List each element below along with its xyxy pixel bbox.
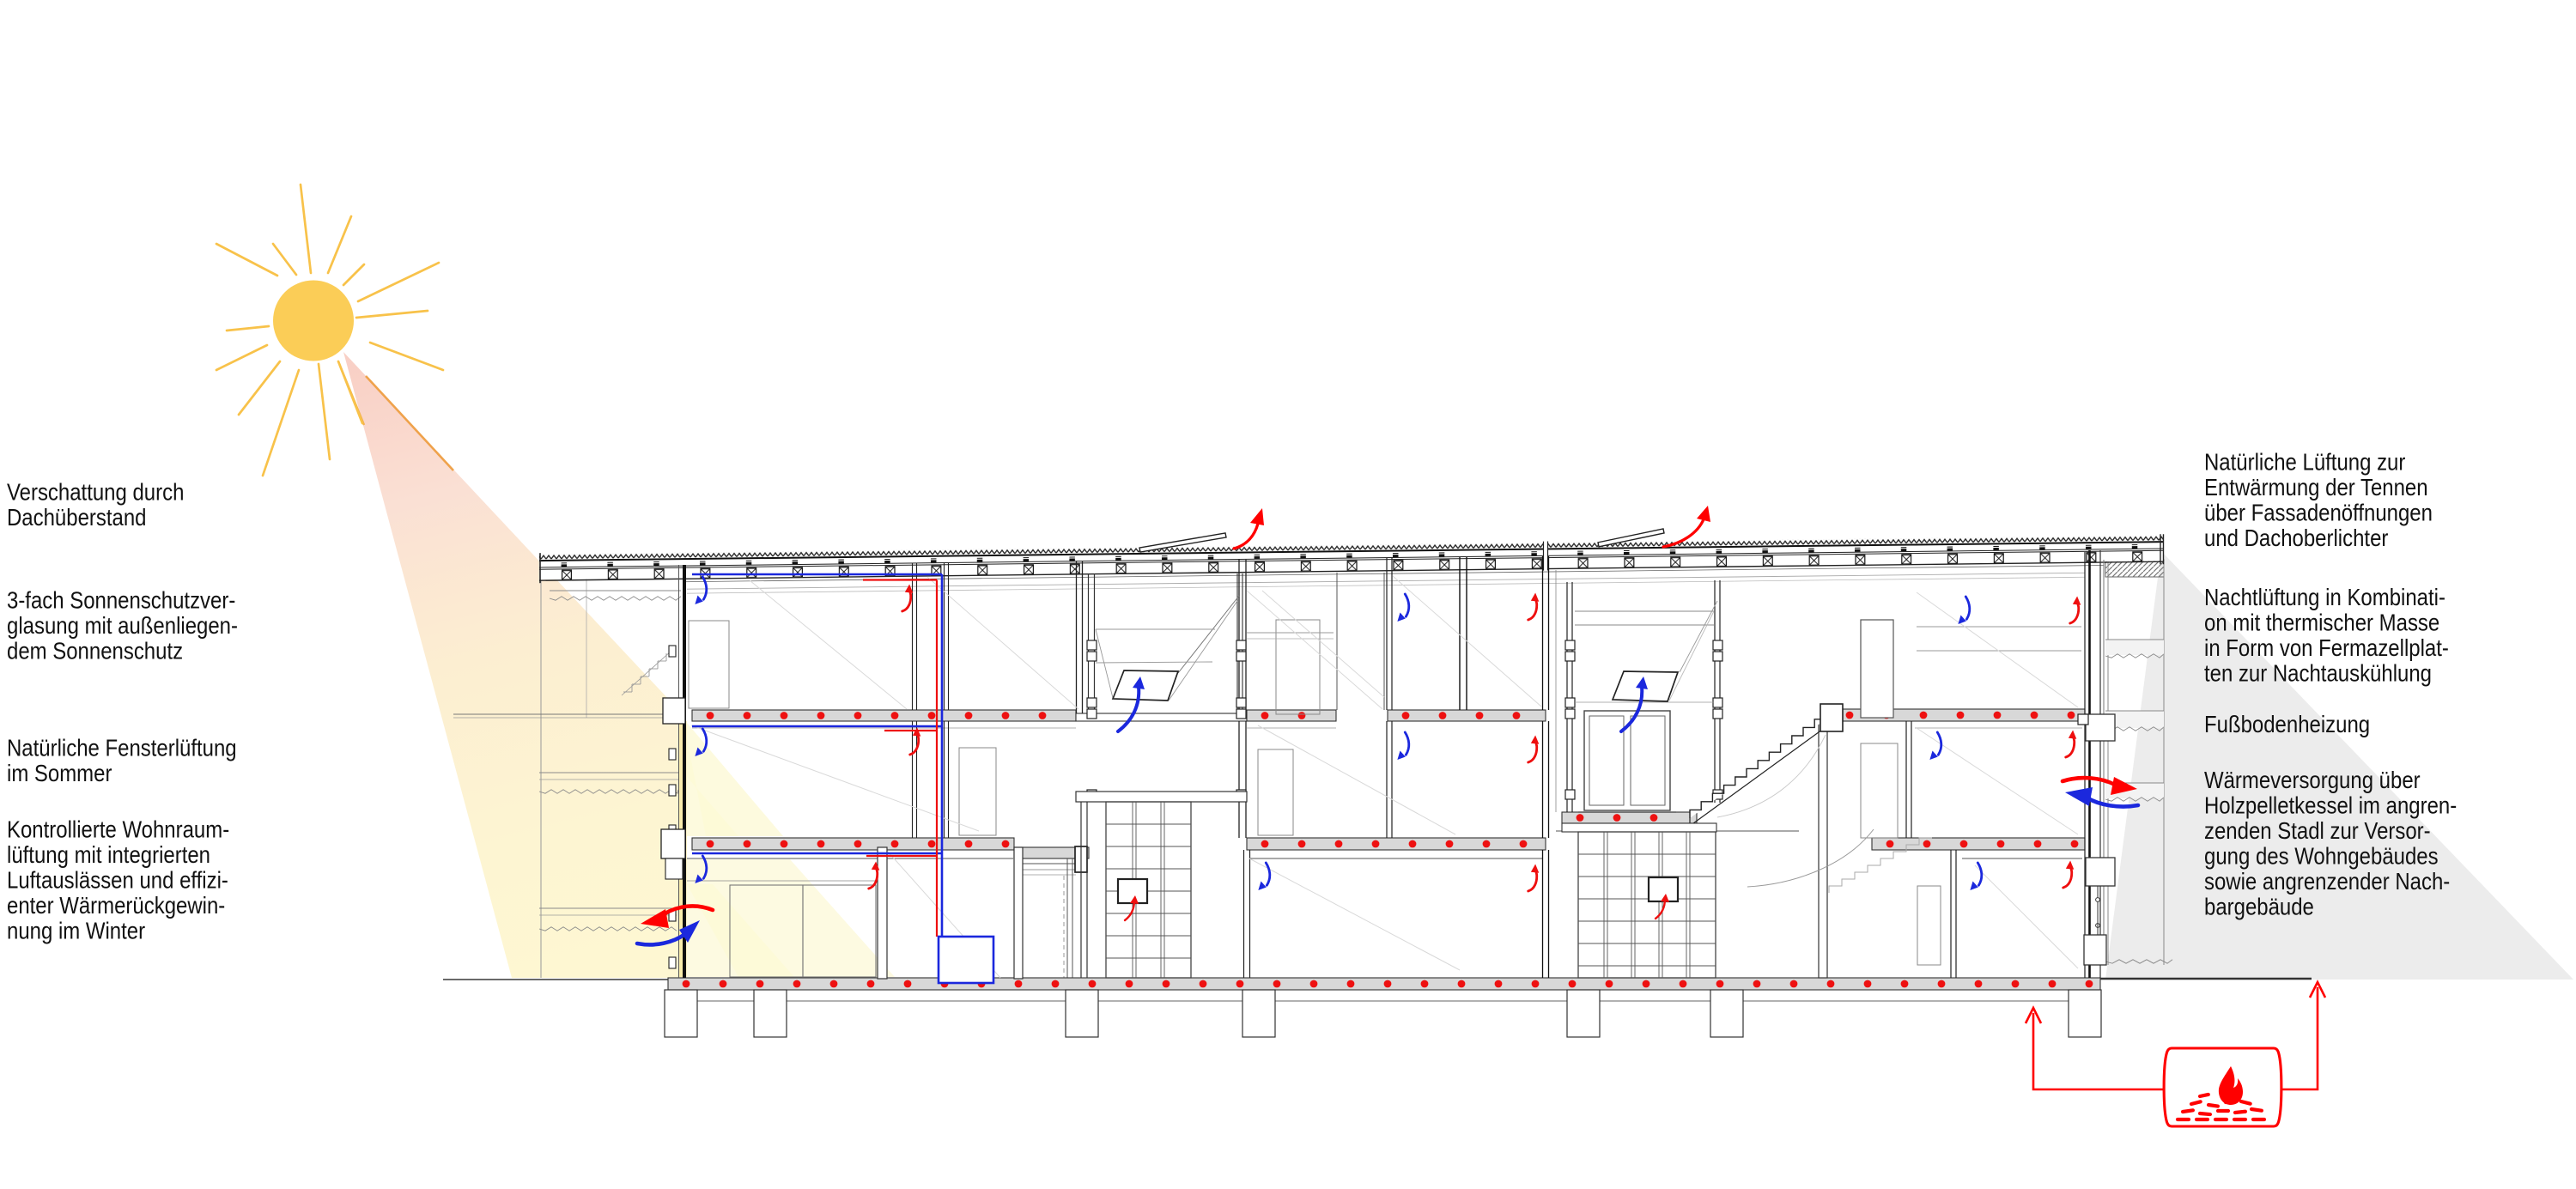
svg-text:3-fach Sonnenschutzver-glasung: 3-fach Sonnenschutzver-glasung mit außen… <box>7 586 238 664</box>
svg-text:Natürliche Lüftung zurEntwärmu: Natürliche Lüftung zurEntwärmung der Ten… <box>2204 448 2433 552</box>
svg-text:Verschattung durchDachüberstan: Verschattung durchDachüberstand <box>7 478 184 531</box>
svg-text:Fußbodenheizung: Fußbodenheizung <box>2204 710 2370 737</box>
svg-text:Natürliche Fensterlüftungim So: Natürliche Fensterlüftungim Sommer <box>7 734 237 787</box>
svg-text:Nachtlüftung in Kombinati-on m: Nachtlüftung in Kombinati-on mit thermis… <box>2204 583 2449 687</box>
svg-text:Kontrollierte Wohnraum-lüftung: Kontrollierte Wohnraum-lüftung mit integ… <box>7 816 229 944</box>
